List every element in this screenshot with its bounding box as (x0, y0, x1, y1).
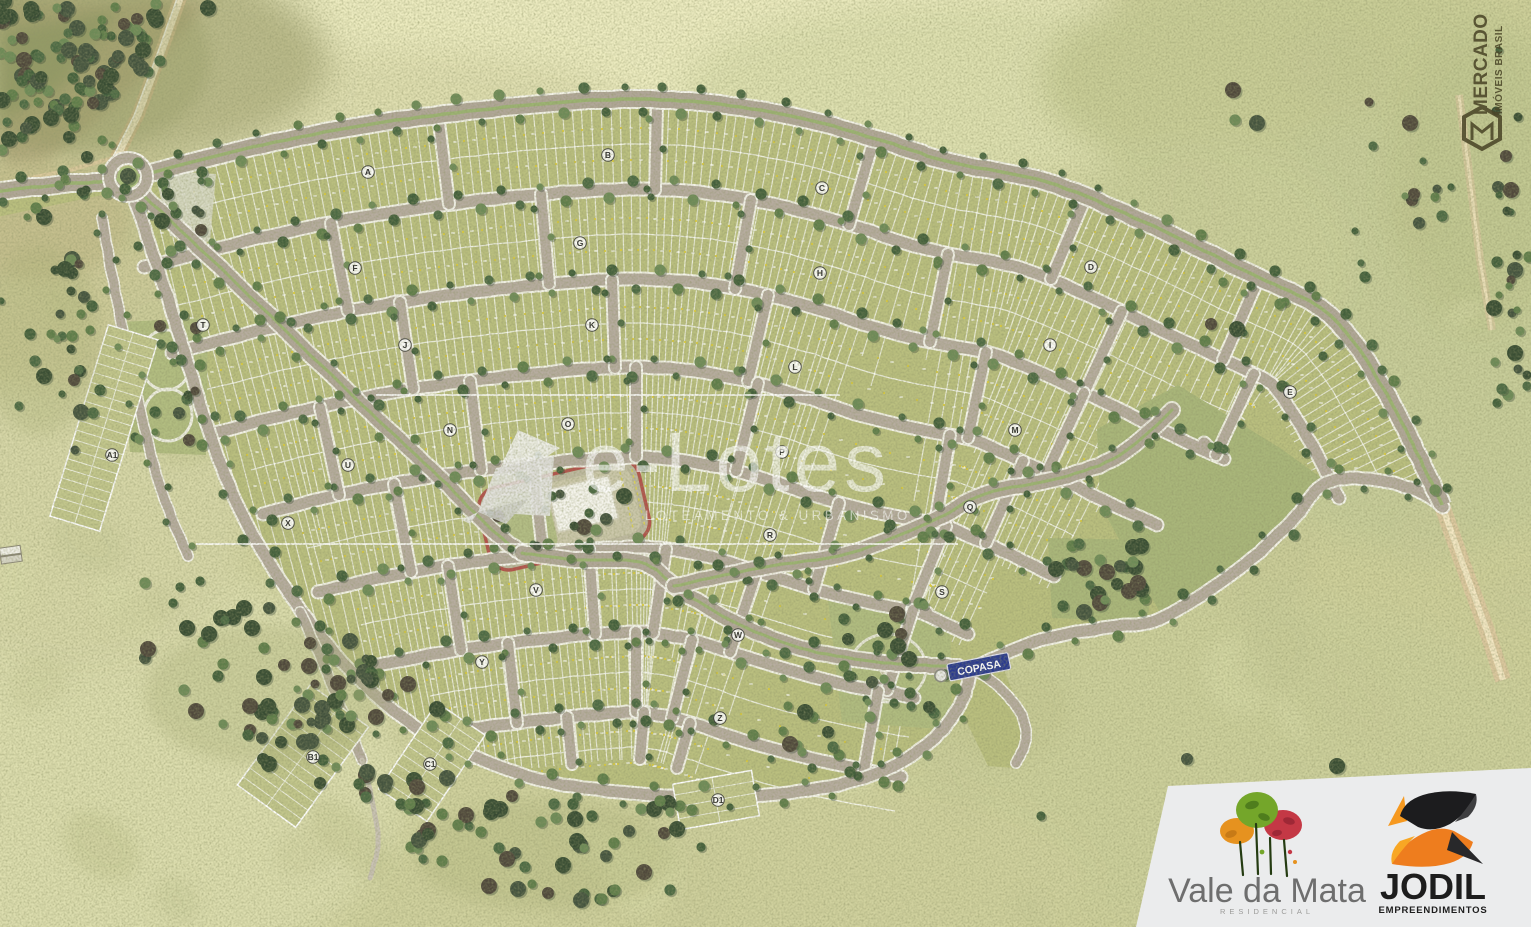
svg-text:EMPREENDIMENTOS: EMPREENDIMENTOS (1379, 905, 1488, 916)
svg-text:RESIDENCIAL: RESIDENCIAL (1220, 907, 1314, 916)
svg-text:MERCADO: MERCADO (1471, 13, 1492, 115)
svg-text:Vale da Mata: Vale da Mata (1168, 872, 1366, 910)
svg-text:JODIL: JODIL (1380, 866, 1486, 907)
svg-text:IMÓVEIS BRASIL: IMÓVEIS BRASIL (1492, 25, 1505, 114)
